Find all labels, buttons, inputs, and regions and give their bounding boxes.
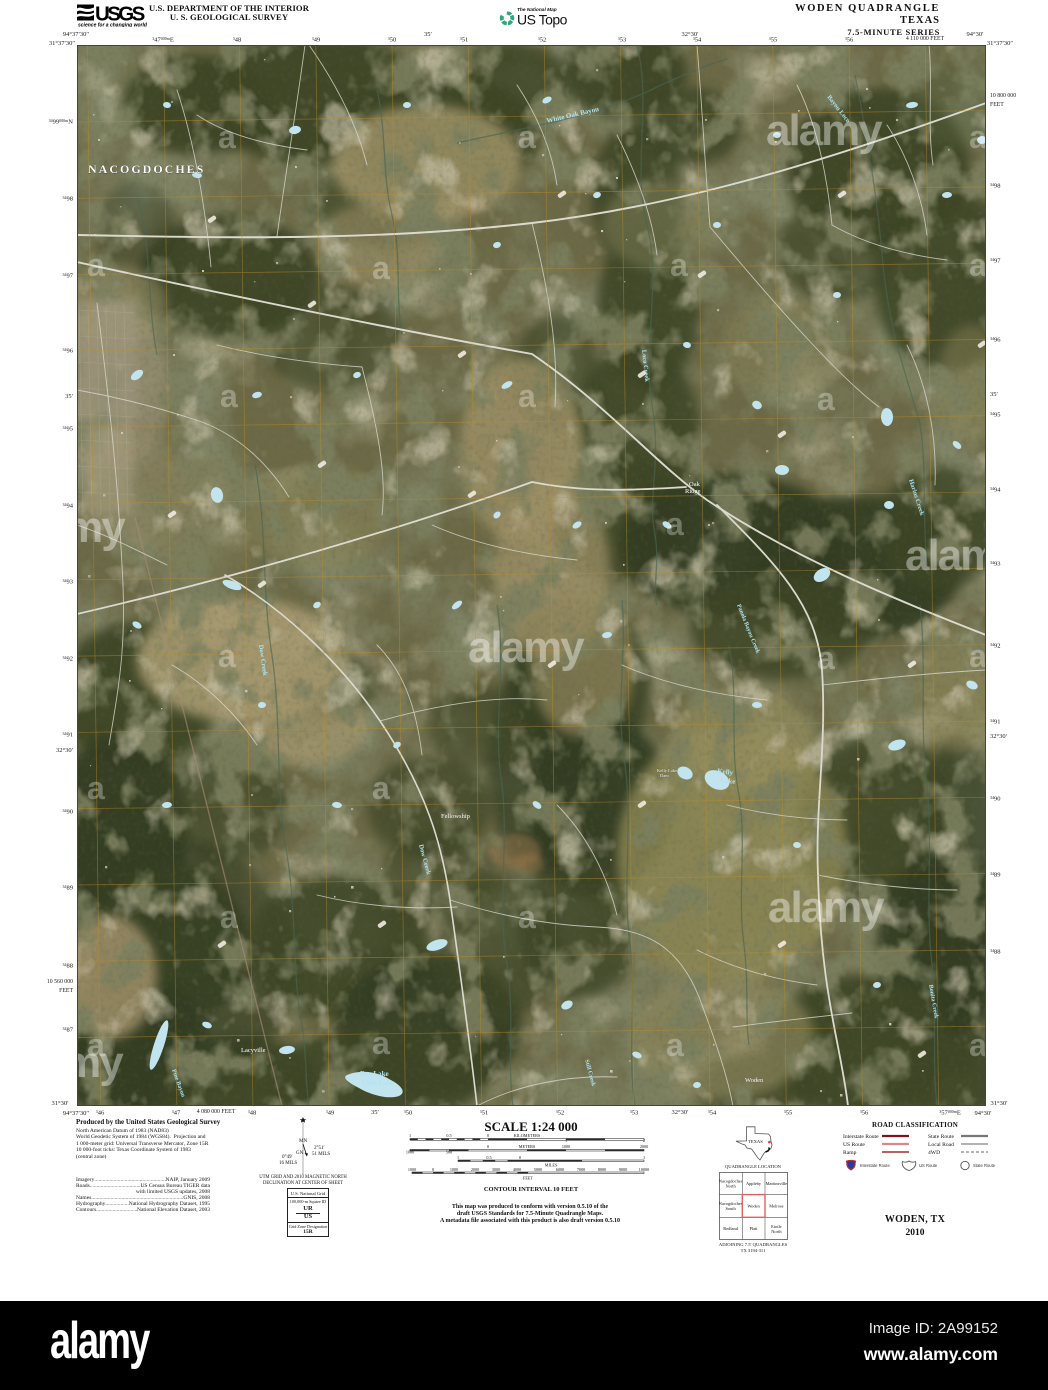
svg-text:a: a bbox=[220, 899, 238, 935]
svg-text:North: North bbox=[725, 1184, 736, 1189]
svg-text:alamy: alamy bbox=[905, 531, 986, 580]
svg-text:a: a bbox=[372, 770, 390, 806]
svg-text:Dam: Dam bbox=[660, 773, 669, 778]
svg-text:Ramp: Ramp bbox=[843, 1150, 857, 1156]
svg-text:North: North bbox=[771, 1229, 782, 1234]
svg-text:a: a bbox=[969, 119, 986, 155]
svg-text:a: a bbox=[666, 1027, 684, 1063]
svg-text:0: 0 bbox=[432, 1167, 434, 1172]
svg-text:4WD: 4WD bbox=[928, 1150, 940, 1156]
svg-text:16 MILS: 16 MILS bbox=[279, 1161, 297, 1166]
svg-text:Woden: Woden bbox=[745, 1077, 764, 1084]
svg-text:Melrose: Melrose bbox=[769, 1204, 783, 1209]
svg-text:1000: 1000 bbox=[450, 1167, 458, 1172]
svg-text:MN: MN bbox=[299, 1139, 307, 1144]
svg-text:Martinsville: Martinsville bbox=[766, 1181, 788, 1186]
svg-text:Redland: Redland bbox=[723, 1226, 738, 1231]
svg-text:US Topo: US Topo bbox=[517, 12, 568, 28]
svg-text:a: a bbox=[817, 640, 835, 676]
svg-text:State Route: State Route bbox=[973, 1163, 996, 1168]
svg-text:7000: 7000 bbox=[577, 1167, 585, 1172]
svg-text:State Route: State Route bbox=[928, 1134, 954, 1140]
svg-text:GN: GN bbox=[296, 1151, 304, 1156]
svg-text:ROAD CLASSIFICATION: ROAD CLASSIFICATION bbox=[872, 1121, 958, 1129]
svg-text:a: a bbox=[518, 899, 536, 935]
svg-text:a: a bbox=[218, 638, 236, 674]
svg-text:Ridge: Ridge bbox=[685, 488, 701, 495]
svg-text:0: 0 bbox=[519, 1155, 521, 1160]
svg-text:4000: 4000 bbox=[513, 1167, 521, 1172]
svg-text:Fellowship: Fellowship bbox=[441, 813, 470, 820]
svg-text:a: a bbox=[87, 770, 105, 806]
svg-text:a: a bbox=[87, 1027, 105, 1063]
svg-text:TEXAS: TEXAS bbox=[748, 1139, 763, 1144]
svg-text:Lacyville: Lacyville bbox=[241, 1047, 266, 1054]
svg-text:alamy: alamy bbox=[468, 623, 585, 672]
svg-text:0: 0 bbox=[487, 1133, 489, 1138]
svg-text:alamy: alamy bbox=[766, 106, 883, 155]
svg-text:6000: 6000 bbox=[556, 1167, 564, 1172]
svg-text:1: 1 bbox=[457, 1155, 459, 1160]
svg-text:US Route: US Route bbox=[843, 1142, 865, 1148]
svg-text:2°51′: 2°51′ bbox=[314, 1146, 325, 1151]
svg-text:KILOMETERS: KILOMETERS bbox=[514, 1133, 541, 1138]
svg-text:Club Lake: Club Lake bbox=[362, 1079, 394, 1087]
svg-text:a: a bbox=[969, 247, 986, 283]
svg-text:0.5: 0.5 bbox=[486, 1155, 491, 1160]
svg-text:1000: 1000 bbox=[408, 1167, 416, 1172]
svg-text:0.5: 0.5 bbox=[446, 1133, 451, 1138]
svg-text:2000: 2000 bbox=[640, 1144, 648, 1149]
svg-text:a: a bbox=[969, 638, 986, 674]
svg-text:1: 1 bbox=[409, 1133, 411, 1138]
svg-text:a: a bbox=[666, 506, 684, 542]
svg-text:a: a bbox=[518, 378, 536, 414]
svg-text:0°49′: 0°49′ bbox=[282, 1155, 293, 1160]
svg-text:US Route: US Route bbox=[919, 1163, 938, 1168]
svg-text:2000: 2000 bbox=[471, 1167, 479, 1172]
svg-text:51 MILS: 51 MILS bbox=[312, 1152, 330, 1157]
svg-text:Appleby: Appleby bbox=[746, 1181, 762, 1186]
svg-text:a: a bbox=[220, 378, 238, 414]
svg-text:science for a changing world: science for a changing world bbox=[78, 23, 148, 28]
svg-text:alamy: alamy bbox=[77, 503, 126, 552]
svg-text:a: a bbox=[670, 247, 688, 283]
svg-text:0: 0 bbox=[487, 1144, 489, 1149]
svg-text:NACOGDOCHES: NACOGDOCHES bbox=[88, 162, 205, 176]
svg-text:8000: 8000 bbox=[598, 1167, 606, 1172]
svg-text:5000: 5000 bbox=[534, 1167, 542, 1172]
svg-text:a: a bbox=[518, 119, 536, 155]
svg-text:a: a bbox=[87, 247, 105, 283]
svg-text:a: a bbox=[372, 250, 390, 286]
svg-text:a: a bbox=[817, 381, 835, 417]
svg-text:a: a bbox=[218, 119, 236, 155]
svg-text:a: a bbox=[969, 1027, 986, 1063]
svg-text:South: South bbox=[725, 1206, 736, 1211]
svg-text:9000: 9000 bbox=[619, 1167, 627, 1172]
svg-text:alamy: alamy bbox=[768, 883, 885, 932]
svg-text:Woden: Woden bbox=[747, 1204, 760, 1209]
svg-text:a: a bbox=[372, 1025, 390, 1061]
svg-text:Interstate Route: Interstate Route bbox=[843, 1134, 879, 1140]
svg-text:METERS: METERS bbox=[519, 1144, 536, 1149]
svg-text:Bay Lake: Bay Lake bbox=[360, 1070, 389, 1078]
svg-text:10000: 10000 bbox=[639, 1167, 649, 1172]
svg-text:Local Road: Local Road bbox=[928, 1142, 954, 1148]
svg-text:FEET: FEET bbox=[523, 1176, 533, 1181]
svg-text:Oak: Oak bbox=[689, 481, 701, 488]
svg-text:1: 1 bbox=[643, 1155, 645, 1160]
svg-text:Platt: Platt bbox=[749, 1226, 758, 1231]
svg-text:1000: 1000 bbox=[562, 1144, 570, 1149]
svg-text:3000: 3000 bbox=[492, 1167, 500, 1172]
svg-text:Interstate Route: Interstate Route bbox=[860, 1163, 890, 1168]
